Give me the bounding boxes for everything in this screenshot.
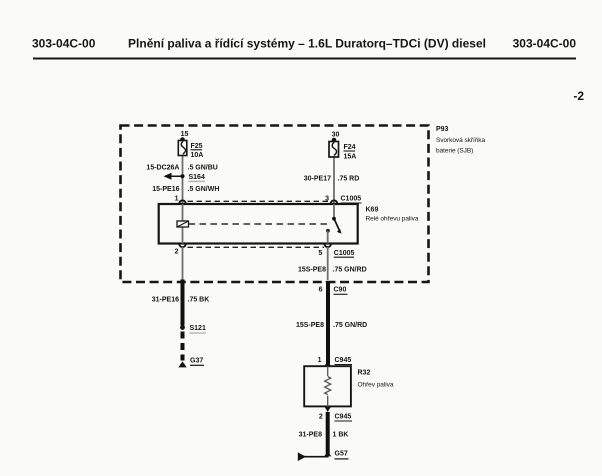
svg-text:.75 RD: .75 RD bbox=[338, 175, 360, 182]
svg-text:C1005: C1005 bbox=[341, 196, 362, 203]
svg-text:P93: P93 bbox=[436, 126, 449, 133]
svg-text:31-PE16: 31-PE16 bbox=[152, 297, 179, 304]
svg-text:G57: G57 bbox=[335, 451, 348, 458]
svg-text:2: 2 bbox=[175, 249, 179, 256]
svg-text:3: 3 bbox=[325, 196, 329, 203]
svg-text:-2: -2 bbox=[573, 89, 584, 103]
svg-text:Ohřev paliva: Ohřev paliva bbox=[358, 381, 394, 388]
svg-text:Relé ohřevu paliva: Relé ohřevu paliva bbox=[366, 215, 419, 222]
svg-text:C90: C90 bbox=[334, 287, 347, 294]
svg-text:baterie (SJB): baterie (SJB) bbox=[436, 148, 473, 155]
svg-text:.75 GN/RD: .75 GN/RD bbox=[333, 267, 367, 274]
svg-text:F24: F24 bbox=[344, 144, 356, 151]
svg-text:1 BK: 1 BK bbox=[333, 432, 349, 439]
svg-text:.5 GN/BU: .5 GN/BU bbox=[188, 165, 218, 172]
svg-text:S164: S164 bbox=[189, 174, 205, 181]
svg-text:15S-PE8: 15S-PE8 bbox=[296, 322, 324, 329]
svg-text:303-04C-00: 303-04C-00 bbox=[513, 36, 577, 50]
svg-text:10A: 10A bbox=[191, 152, 204, 159]
svg-text:5: 5 bbox=[318, 250, 322, 257]
svg-text:K69: K69 bbox=[366, 207, 379, 214]
svg-text:15-PE16: 15-PE16 bbox=[152, 186, 179, 193]
svg-text:.5 GN/WH: .5 GN/WH bbox=[188, 186, 220, 193]
svg-text:15S-PE8: 15S-PE8 bbox=[298, 267, 326, 274]
svg-text:15-DC26A: 15-DC26A bbox=[146, 165, 179, 172]
svg-text:6: 6 bbox=[319, 287, 323, 294]
svg-text:30: 30 bbox=[332, 131, 340, 138]
svg-text:F25: F25 bbox=[191, 143, 203, 150]
svg-text:Plnění paliva a řídící systémy: Plnění paliva a řídící systémy – 1.6L Du… bbox=[128, 36, 486, 50]
svg-text:Svorková skříňka: Svorková skříňka bbox=[436, 137, 485, 144]
svg-text:303-04C-00: 303-04C-00 bbox=[32, 36, 96, 50]
svg-text:C945: C945 bbox=[335, 357, 352, 364]
svg-text:30-PE17: 30-PE17 bbox=[304, 175, 331, 182]
svg-text:15A: 15A bbox=[344, 154, 357, 161]
svg-text:C945: C945 bbox=[335, 413, 352, 420]
svg-text:G37: G37 bbox=[190, 357, 203, 364]
svg-text:2: 2 bbox=[319, 414, 323, 421]
svg-text:31-PE8: 31-PE8 bbox=[299, 432, 322, 439]
svg-text:.75 GN/RD: .75 GN/RD bbox=[333, 322, 367, 329]
svg-text:S121: S121 bbox=[190, 325, 206, 332]
svg-text:.75 BK: .75 BK bbox=[188, 297, 210, 304]
svg-text:R32: R32 bbox=[358, 369, 371, 376]
svg-text:C1005: C1005 bbox=[334, 250, 355, 257]
svg-text:1: 1 bbox=[175, 196, 179, 203]
svg-text:15: 15 bbox=[181, 131, 189, 138]
svg-text:1: 1 bbox=[318, 357, 322, 364]
